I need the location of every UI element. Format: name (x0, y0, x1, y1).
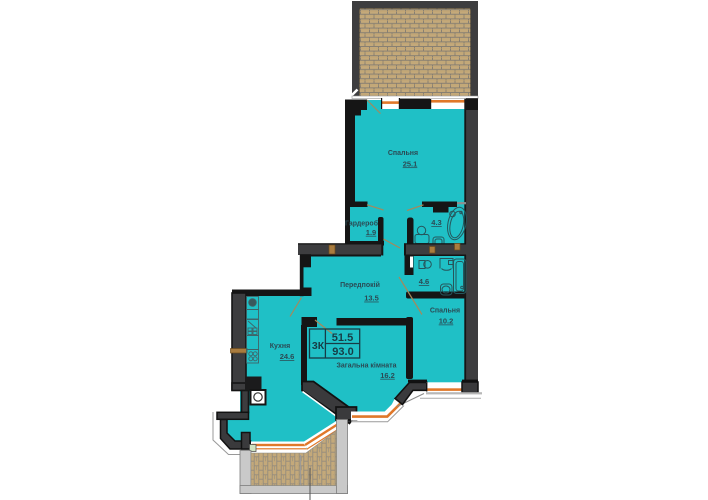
svg-text:24.6: 24.6 (280, 352, 295, 361)
svg-text:10.2: 10.2 (439, 317, 454, 326)
svg-text:25.1: 25.1 (403, 159, 418, 168)
svg-text:16.2: 16.2 (380, 371, 395, 380)
svg-text:Спальня: Спальня (388, 150, 418, 157)
svg-text:13.5: 13.5 (364, 294, 379, 303)
svg-text:Загальна кімната: Загальна кімната (337, 362, 397, 370)
svg-text:4.6: 4.6 (419, 277, 429, 286)
svg-text:Кухня: Кухня (270, 343, 290, 350)
svg-text:4.3: 4.3 (431, 218, 441, 227)
svg-text:1.9: 1.9 (366, 228, 376, 237)
svg-text:Спальня: Спальня (430, 308, 460, 315)
svg-text:93.0: 93.0 (332, 346, 353, 358)
svg-text:Передпокій: Передпокій (340, 281, 380, 289)
svg-text:3К: 3К (312, 340, 325, 352)
svg-text:51.5: 51.5 (332, 332, 353, 344)
svg-text:Гардероб: Гардероб (345, 220, 379, 228)
